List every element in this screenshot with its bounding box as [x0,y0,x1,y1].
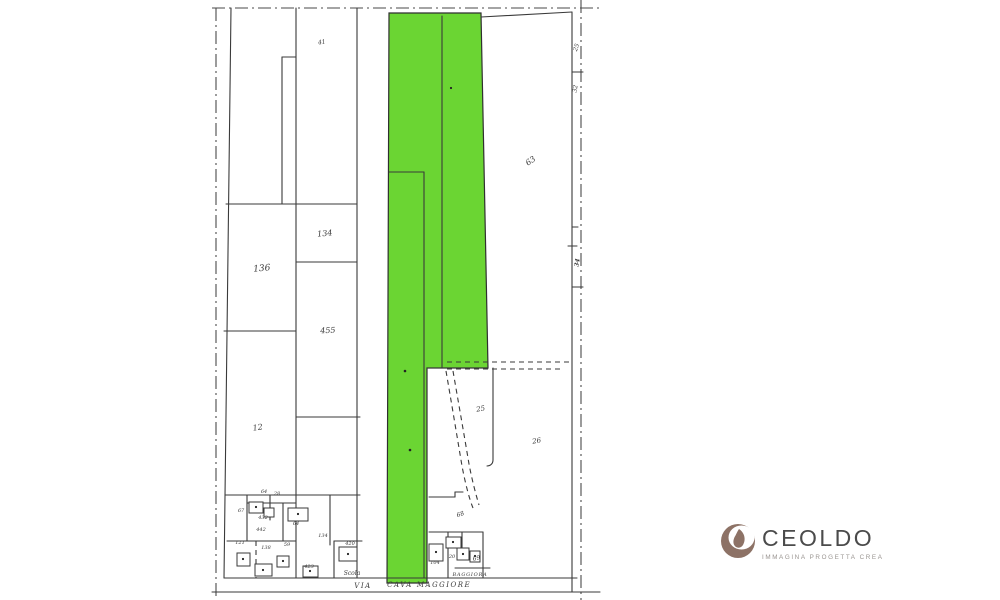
cluster-number-labels: 64 28 67 432 442 64 134 121 138 59 420 4… [235,489,355,570]
parcel-label: 26 [531,436,543,446]
cadastral-map-page: 41 134 136 455 12 63 25 26 68 69 104 20 … [0,0,1000,600]
parcel-label: 136 [253,263,271,274]
parcel-label: 134 [317,228,333,238]
parcel-label: 59 [284,542,291,548]
ceoldo-swirl-icon [720,523,756,559]
road-name: VIA CAVA MAGGIORE [354,581,471,590]
parcel-label: 138 [261,545,271,551]
parcel-label: 20 [448,554,456,560]
logo-tagline: IMMAGINA PROGETTA CREA [762,554,884,561]
parcel-label: 432 [257,515,268,521]
parcel-label: 25 [572,43,582,54]
parcel-label: 64 [261,489,267,495]
parcel-label: 34 [573,258,581,267]
locality-label: Scola [344,570,361,577]
parcel-label: 28 [273,491,280,497]
strip-number-labels: 25 32 34 [571,43,581,268]
parcel-label: 64 [293,521,299,527]
parcel-label: 68 [456,510,466,519]
parcel-label: 442 [255,527,266,533]
parcel-label: 25 [475,404,487,414]
parcel-label: 67 [238,508,245,514]
parcel-label: 455 [319,326,336,336]
company-logo: CEOLDO IMMAGINA PROGETTA CREA [720,523,884,561]
parcel-label: 420 [344,541,355,547]
road-name-word: VIA [354,582,371,590]
building-cluster-left [227,495,362,578]
parcel-label: 63 [524,154,538,167]
road-name-word: MAGGIORE [416,581,471,589]
logo-name: CEOLDO [762,527,884,550]
parcel-label: 32 [571,84,579,93]
parcel-label: 121 [235,540,245,546]
parcel-label: 41 [317,39,327,47]
parcel-label: 134 [318,533,328,539]
parcel-label: 423 [303,564,314,570]
parcel-label: 12 [252,422,263,432]
road-name-word: CAVA [387,581,413,589]
locality-label: BAGGIORA [451,572,487,578]
parcel-label: 104 [430,560,440,566]
cadastral-map: 41 134 136 455 12 63 25 26 68 69 104 20 … [0,0,1000,600]
